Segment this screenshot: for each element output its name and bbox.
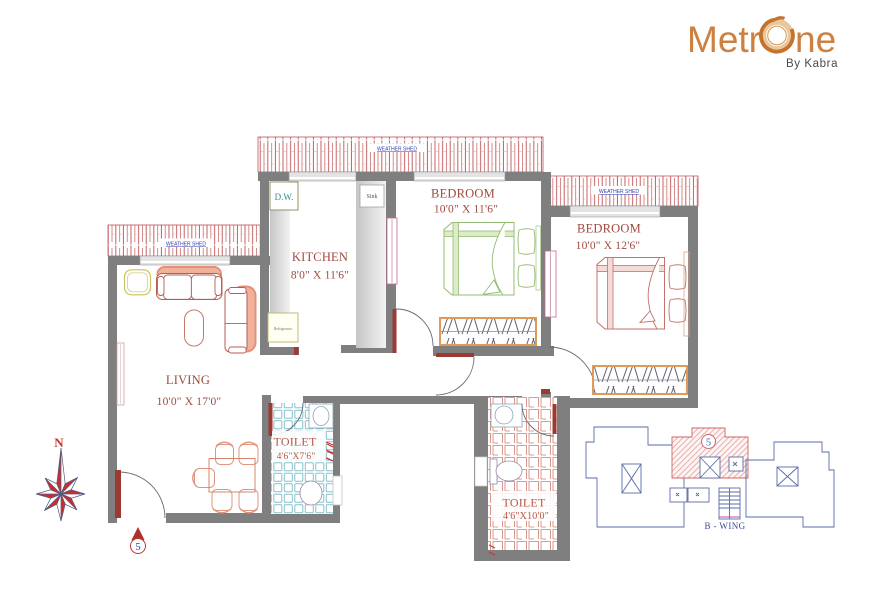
svg-text:4'6"X7'6": 4'6"X7'6" xyxy=(277,452,316,462)
svg-text:10'0" X 17'0": 10'0" X 17'0" xyxy=(157,396,222,408)
svg-text:5: 5 xyxy=(135,542,140,553)
svg-text:8'0" X 11'6": 8'0" X 11'6" xyxy=(291,270,349,282)
svg-text:N: N xyxy=(54,435,64,450)
svg-text:ne: ne xyxy=(795,19,836,60)
svg-text:Refrigerator: Refrigerator xyxy=(274,327,293,331)
svg-text:KITCHEN: KITCHEN xyxy=(292,250,348,264)
svg-text:By Kabra: By Kabra xyxy=(786,58,838,70)
svg-text:10'0" X 12'6": 10'0" X 12'6" xyxy=(576,240,641,252)
svg-text:BEDROOM: BEDROOM xyxy=(577,222,641,236)
svg-text:5: 5 xyxy=(706,438,711,449)
svg-text:10'0" X 11'6": 10'0" X 11'6" xyxy=(434,204,498,216)
svg-text:BEDROOM: BEDROOM xyxy=(431,187,495,201)
svg-text:TOILET: TOILET xyxy=(503,496,546,510)
svg-text:TOILET: TOILET xyxy=(274,435,317,449)
svg-text:WEATHER SHED: WEATHER SHED xyxy=(166,242,206,248)
svg-text:4'6"X10'0": 4'6"X10'0" xyxy=(503,511,549,522)
svg-text:Sink: Sink xyxy=(366,194,377,200)
svg-text:LIVING: LIVING xyxy=(166,373,210,387)
svg-text:WEATHER SHED: WEATHER SHED xyxy=(599,189,639,195)
svg-text:D.W.: D.W. xyxy=(275,192,294,202)
svg-text:B - WING: B - WING xyxy=(704,521,745,531)
svg-text:WEATHER SHED: WEATHER SHED xyxy=(377,147,417,153)
svg-text:Metr: Metr xyxy=(687,19,761,60)
